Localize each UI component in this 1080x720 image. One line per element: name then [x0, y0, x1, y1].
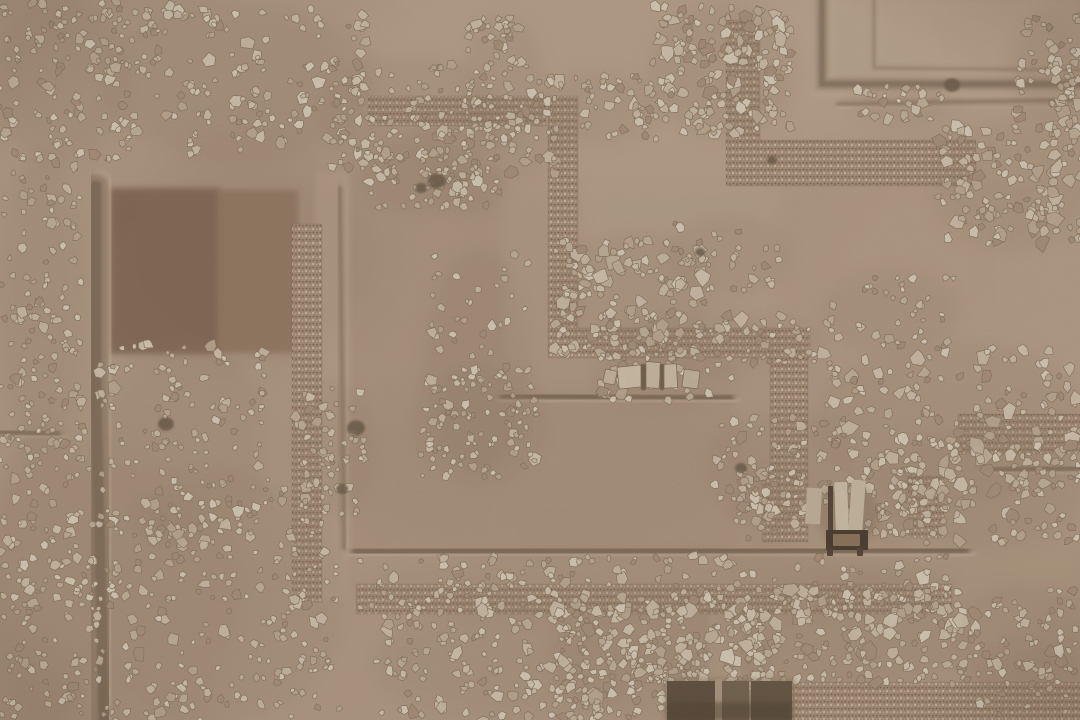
screenshot-root — [0, 0, 1080, 720]
vignette — [0, 0, 1080, 720]
excavation-aerial-photo — [0, 0, 1080, 720]
aerial-photo-canvas — [0, 0, 1080, 720]
